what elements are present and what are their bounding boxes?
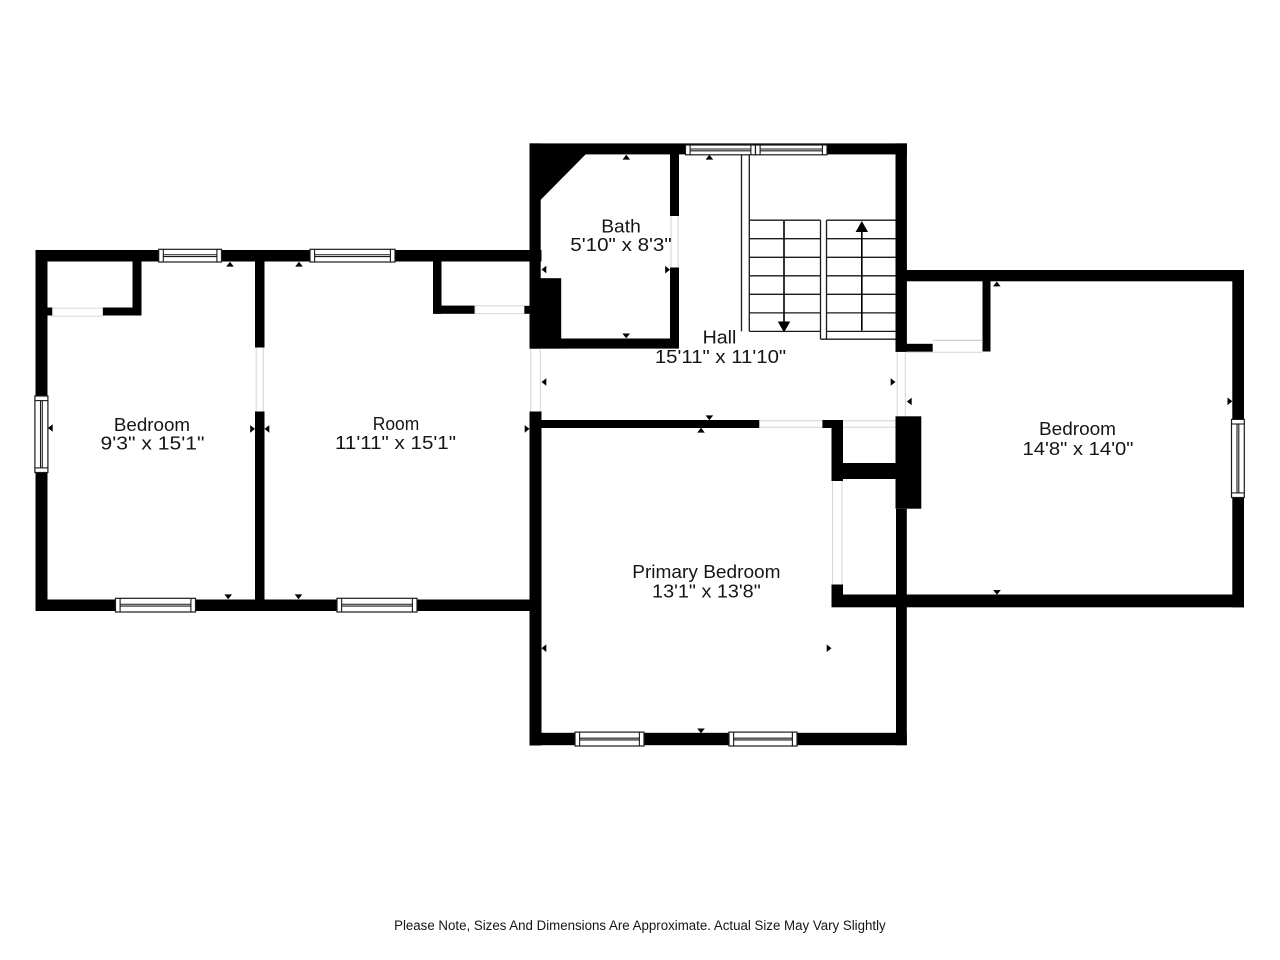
svg-text:Primary Bedroom: Primary Bedroom bbox=[632, 561, 780, 582]
svg-text:Bedroom: Bedroom bbox=[1039, 418, 1116, 439]
svg-text:14'8" x 14'0": 14'8" x 14'0" bbox=[1023, 438, 1134, 459]
svg-text:Hall: Hall bbox=[703, 327, 737, 348]
svg-text:9'3" x 15'1": 9'3" x 15'1" bbox=[101, 433, 205, 454]
svg-text:Please Note, Sizes And Dimensi: Please Note, Sizes And Dimensions Are Ap… bbox=[394, 918, 886, 933]
svg-text:11'11" x 15'1": 11'11" x 15'1" bbox=[335, 432, 456, 453]
svg-text:13'1" x 13'8": 13'1" x 13'8" bbox=[652, 580, 761, 601]
svg-text:Room: Room bbox=[373, 413, 420, 434]
svg-text:15'11" x 11'10": 15'11" x 11'10" bbox=[655, 346, 786, 367]
svg-text:5'10" x 8'3": 5'10" x 8'3" bbox=[570, 234, 671, 255]
